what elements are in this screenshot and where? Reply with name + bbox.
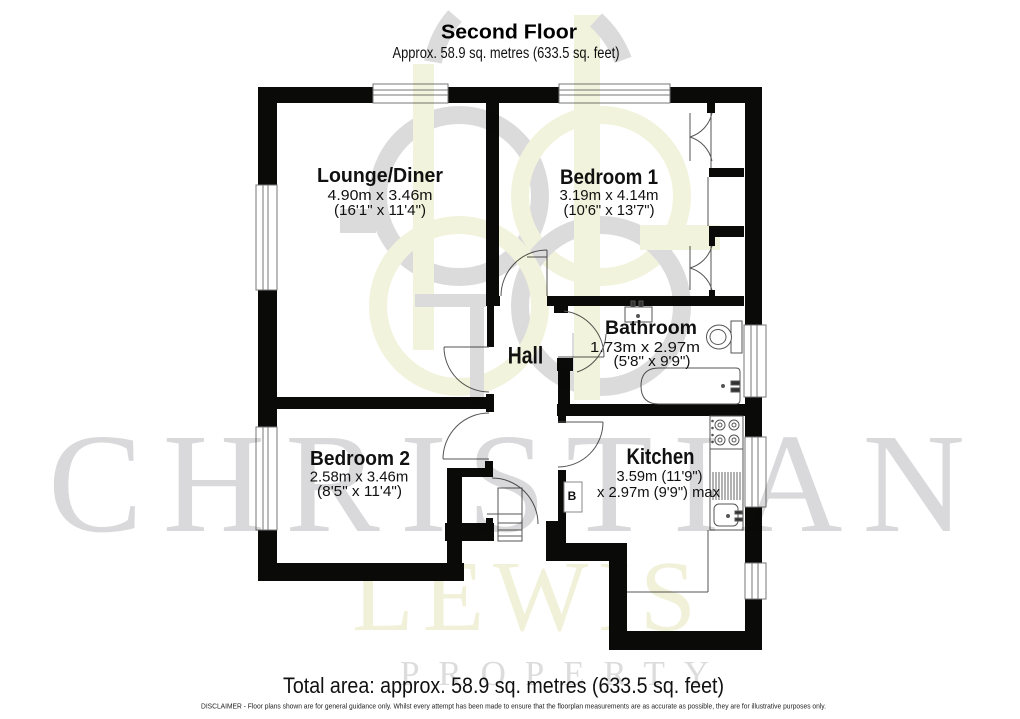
svg-text:DISCLAIMER - Floor plans sho: DISCLAIMER - Floor plans shown are for g… [201,702,826,711]
svg-text:Second Floor: Second Floor [441,21,577,44]
svg-text:LEWIS: LEWIS [352,540,696,652]
svg-text:CHRISTIAN: CHRISTIAN [48,404,965,562]
